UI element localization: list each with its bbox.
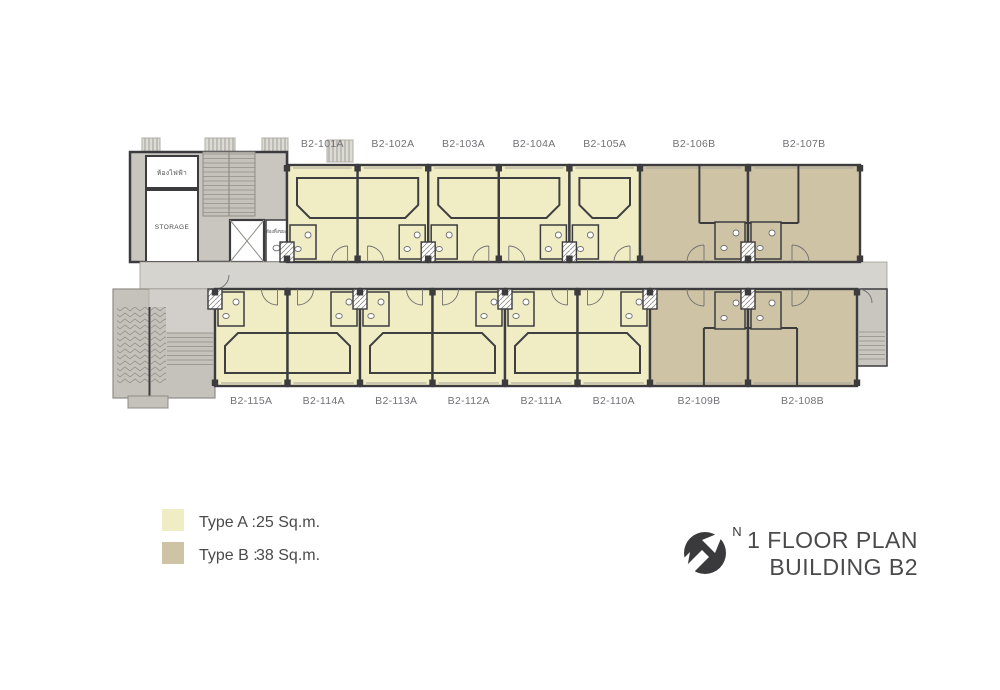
unit-B2-107B <box>748 165 860 262</box>
toilet-fixture-icon <box>481 314 487 319</box>
title-line-1: 1 FLOOR PLAN <box>747 527 918 553</box>
sink-fixture-icon <box>446 232 452 238</box>
toilet-fixture-icon <box>436 247 442 252</box>
room-label: B2-102A <box>371 138 414 150</box>
sink-fixture-icon <box>414 232 420 238</box>
column <box>354 256 360 263</box>
column <box>496 256 502 263</box>
electrical-room-label: ห้องไฟฟ้า <box>157 169 187 177</box>
column <box>429 380 435 387</box>
toilet-fixture-icon <box>368 314 374 319</box>
sink-fixture-icon <box>378 299 384 305</box>
sink-fixture-icon <box>769 300 775 306</box>
toilet-fixture-icon <box>626 314 632 319</box>
sink-fixture-icon <box>555 232 561 238</box>
column <box>857 165 863 172</box>
column <box>647 289 653 296</box>
stair-run <box>151 307 166 383</box>
unit-B2-106B <box>640 165 748 262</box>
column <box>212 380 218 387</box>
waste-room-label: ห้องทิ้งขยะ <box>266 228 287 234</box>
column <box>745 289 751 296</box>
column <box>566 256 572 263</box>
sink-fixture-icon <box>733 300 739 306</box>
room-label: B2-110A <box>593 395 635 407</box>
column <box>284 289 290 296</box>
column <box>745 256 751 263</box>
column <box>857 256 863 263</box>
sink-fixture-icon <box>305 232 311 238</box>
legend-area-type-a: 25 Sq.m. <box>256 514 320 531</box>
corridor <box>140 262 887 289</box>
room-label: B2-113A <box>375 395 417 407</box>
room-label: B2-103A <box>442 138 485 150</box>
stair-run <box>117 307 149 383</box>
unit-B2-109B <box>650 289 748 386</box>
room-label: B2-108B <box>781 395 824 407</box>
plan-title: 1 FLOOR PLAN BUILDING B2 <box>747 527 918 580</box>
toilet-fixture-icon <box>513 314 519 319</box>
column <box>637 256 643 263</box>
room-label: B2-112A <box>448 395 490 407</box>
toilet-fixture-icon <box>336 314 342 319</box>
room-label: B2-111A <box>521 395 562 407</box>
room-label: B2-115A <box>230 395 272 407</box>
column <box>425 165 431 172</box>
toilet-fixture-icon <box>721 316 727 321</box>
column <box>502 380 508 387</box>
sink-fixture-icon <box>523 299 529 305</box>
legend-swatch-type-b <box>162 542 184 564</box>
column <box>425 256 431 263</box>
toilet-fixture-icon <box>545 247 551 252</box>
title-line-2: BUILDING B2 <box>769 554 918 580</box>
sink-fixture-icon <box>636 299 642 305</box>
column <box>745 380 751 387</box>
column <box>566 165 572 172</box>
column <box>854 289 860 296</box>
room-label: B2-105A <box>583 138 626 150</box>
floor-plan-drawing: ห้องไฟฟ้า STORAGE ห้องทิ้งขยะ <box>0 0 1000 690</box>
toilet-fixture-icon <box>404 247 410 252</box>
column <box>745 165 751 172</box>
column <box>357 289 363 296</box>
column <box>354 165 360 172</box>
room-label: B2-106B <box>673 138 716 150</box>
column <box>496 165 502 172</box>
unit-B2-108B <box>748 289 857 386</box>
column <box>284 256 290 263</box>
right-stair <box>857 289 887 366</box>
column <box>647 380 653 387</box>
column <box>284 165 290 172</box>
column <box>574 380 580 387</box>
legend-swatch-type-a <box>162 509 184 531</box>
sink-fixture-icon <box>491 299 497 305</box>
column <box>429 289 435 296</box>
toilet-fixture-icon <box>295 247 301 252</box>
elevator-shaft <box>230 220 264 262</box>
column <box>637 165 643 172</box>
column <box>284 380 290 387</box>
sink-fixture-icon <box>233 299 239 305</box>
sink-fixture-icon <box>733 230 739 236</box>
legend: Type A : 25 Sq.m. Type B : 38 Sq.m. <box>162 509 320 564</box>
room-label: B2-114A <box>303 395 345 407</box>
column <box>854 380 860 387</box>
room-label: B2-107B <box>783 138 826 150</box>
room-label: B2-109B <box>678 395 721 407</box>
toilet-fixture-icon <box>757 246 763 251</box>
column <box>574 289 580 296</box>
storage-room-label: STORAGE <box>155 224 190 231</box>
sink-fixture-icon <box>346 299 352 305</box>
column <box>357 380 363 387</box>
toilet-fixture-icon <box>757 316 763 321</box>
room-label: B2-104A <box>513 138 556 150</box>
toilet-fixture-icon <box>223 314 229 319</box>
sink-fixture-icon <box>769 230 775 236</box>
north-label: N <box>732 524 741 539</box>
toilet-fixture-icon <box>577 247 583 252</box>
room-label: B2-101A <box>301 138 344 150</box>
column <box>502 289 508 296</box>
column <box>212 289 218 296</box>
legend-label-type-b: Type B : <box>199 547 258 564</box>
toilet-fixture-icon <box>721 246 727 251</box>
legend-label-type-a: Type A : <box>199 514 256 531</box>
toilet-fixture-icon <box>273 245 280 251</box>
floor-plan-page: ห้องไฟฟ้า STORAGE ห้องทิ้งขยะ <box>0 0 1000 690</box>
sink-fixture-icon <box>587 232 593 238</box>
north-arrow: N <box>683 524 742 574</box>
legend-area-type-b: 38 Sq.m. <box>256 547 320 564</box>
